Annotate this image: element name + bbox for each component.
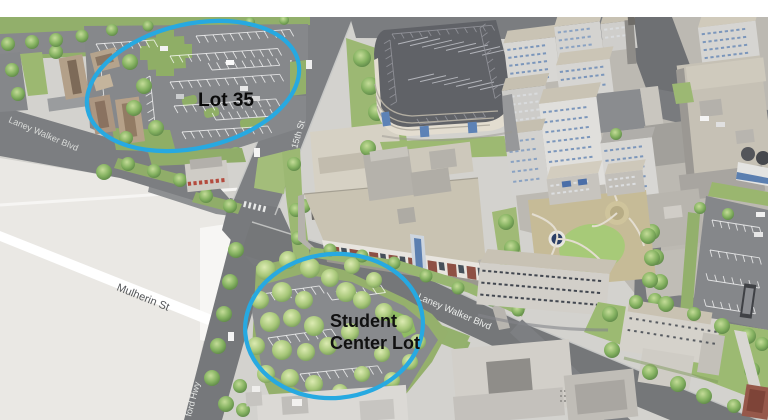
svg-text:Center Lot: Center Lot: [330, 333, 420, 353]
svg-text:Lot 35: Lot 35: [198, 90, 254, 111]
svg-text:Student: Student: [330, 311, 397, 331]
